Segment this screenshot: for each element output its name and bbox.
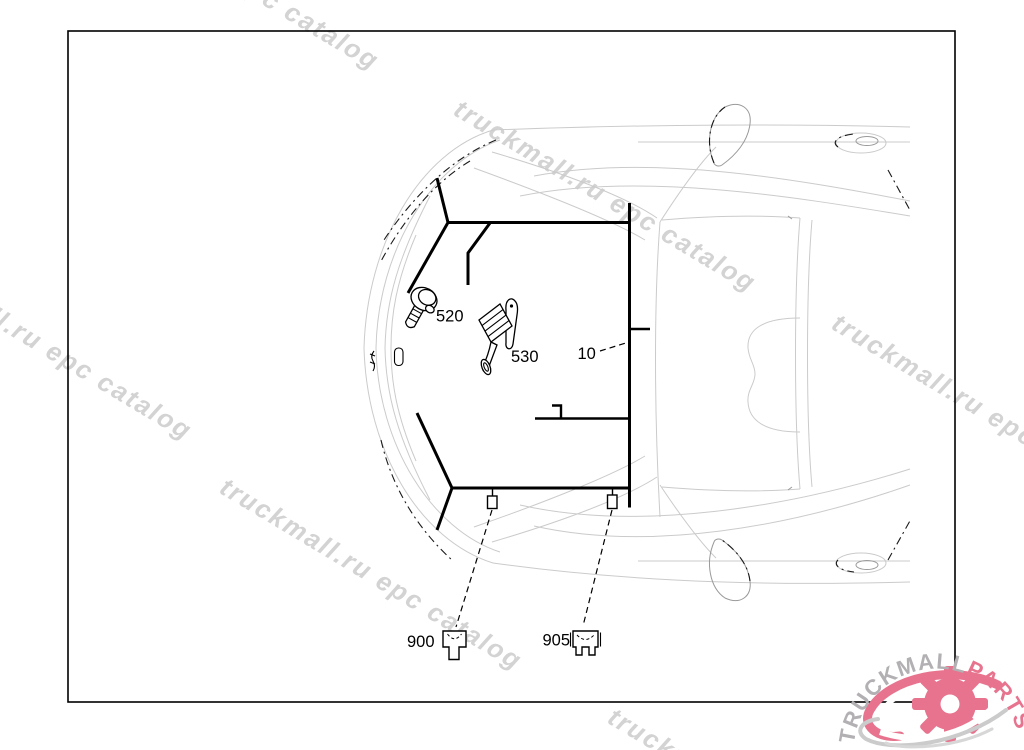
leader-line-900 — [456, 510, 492, 627]
seat-silhouette — [748, 318, 800, 432]
front-bumper-arc — [385, 196, 430, 500]
harness-branch — [408, 223, 448, 294]
watermark-text: truckmall.ru epc catalog — [827, 307, 1024, 511]
catalog-page: truckmall.ru epc catalog truckmall.ru ep… — [0, 0, 1024, 750]
a-pillar-bottom — [660, 485, 716, 558]
rear-window-edge — [808, 220, 813, 487]
leader-lines — [456, 342, 629, 627]
connector-900-icon — [443, 631, 466, 660]
side-mirror-icon — [710, 539, 751, 601]
connector-socket — [488, 496, 498, 509]
harness-inner-hook — [552, 406, 561, 419]
side-mirror-icon — [710, 104, 751, 166]
front-bumper-arc — [391, 235, 416, 461]
door-handle-icon — [836, 553, 886, 573]
bumper-lower-dashdot — [381, 440, 453, 561]
truckmall-logo: TRUCKMALLPARTS — [834, 648, 1024, 746]
beltline-curve — [520, 469, 910, 516]
door-handle-icon — [835, 133, 886, 153]
body-side-line-bottom — [493, 563, 910, 583]
diagram-canvas: truckmall.ru epc catalog truckmall.ru ep… — [0, 0, 1024, 750]
front-bumper-arc — [376, 140, 500, 552]
watermark-text: truckmall.ru epc catalog — [449, 93, 762, 297]
roof-outline — [662, 487, 800, 491]
roof-outline — [662, 216, 800, 220]
harness-top-run — [437, 178, 448, 223]
part-label-905: 905 — [543, 632, 571, 650]
watermark-layer: truckmall.ru epc catalog truckmall.ru ep… — [0, 0, 1024, 750]
car-outline — [364, 104, 911, 600]
part-label-10: 10 — [578, 345, 596, 363]
leader-line-905 — [583, 510, 612, 626]
watermark-text: truckmall.ru epc catalog — [72, 0, 385, 76]
b-pillar-dashdot — [888, 519, 911, 560]
harness-branch — [468, 223, 490, 285]
part-label-900: 900 — [407, 633, 435, 651]
rear-window-edge — [796, 218, 801, 489]
part-label-520: 520 — [436, 308, 464, 326]
harness-branch — [417, 413, 452, 488]
b-pillar-dashdot — [888, 170, 911, 212]
body-side-line-top — [493, 125, 910, 130]
connector-socket — [608, 495, 618, 509]
harness-branch — [437, 488, 452, 530]
leader-line-10 — [600, 342, 629, 351]
part-label-530: 530 — [511, 348, 539, 366]
connector-905-icon — [571, 631, 601, 655]
windshield-base — [656, 222, 661, 517]
watermark-text: truckmall.ru epc catalog — [215, 471, 528, 675]
a-pillar-top — [660, 147, 716, 222]
watermark-text: truckmall.ru epc catalog — [0, 241, 198, 445]
